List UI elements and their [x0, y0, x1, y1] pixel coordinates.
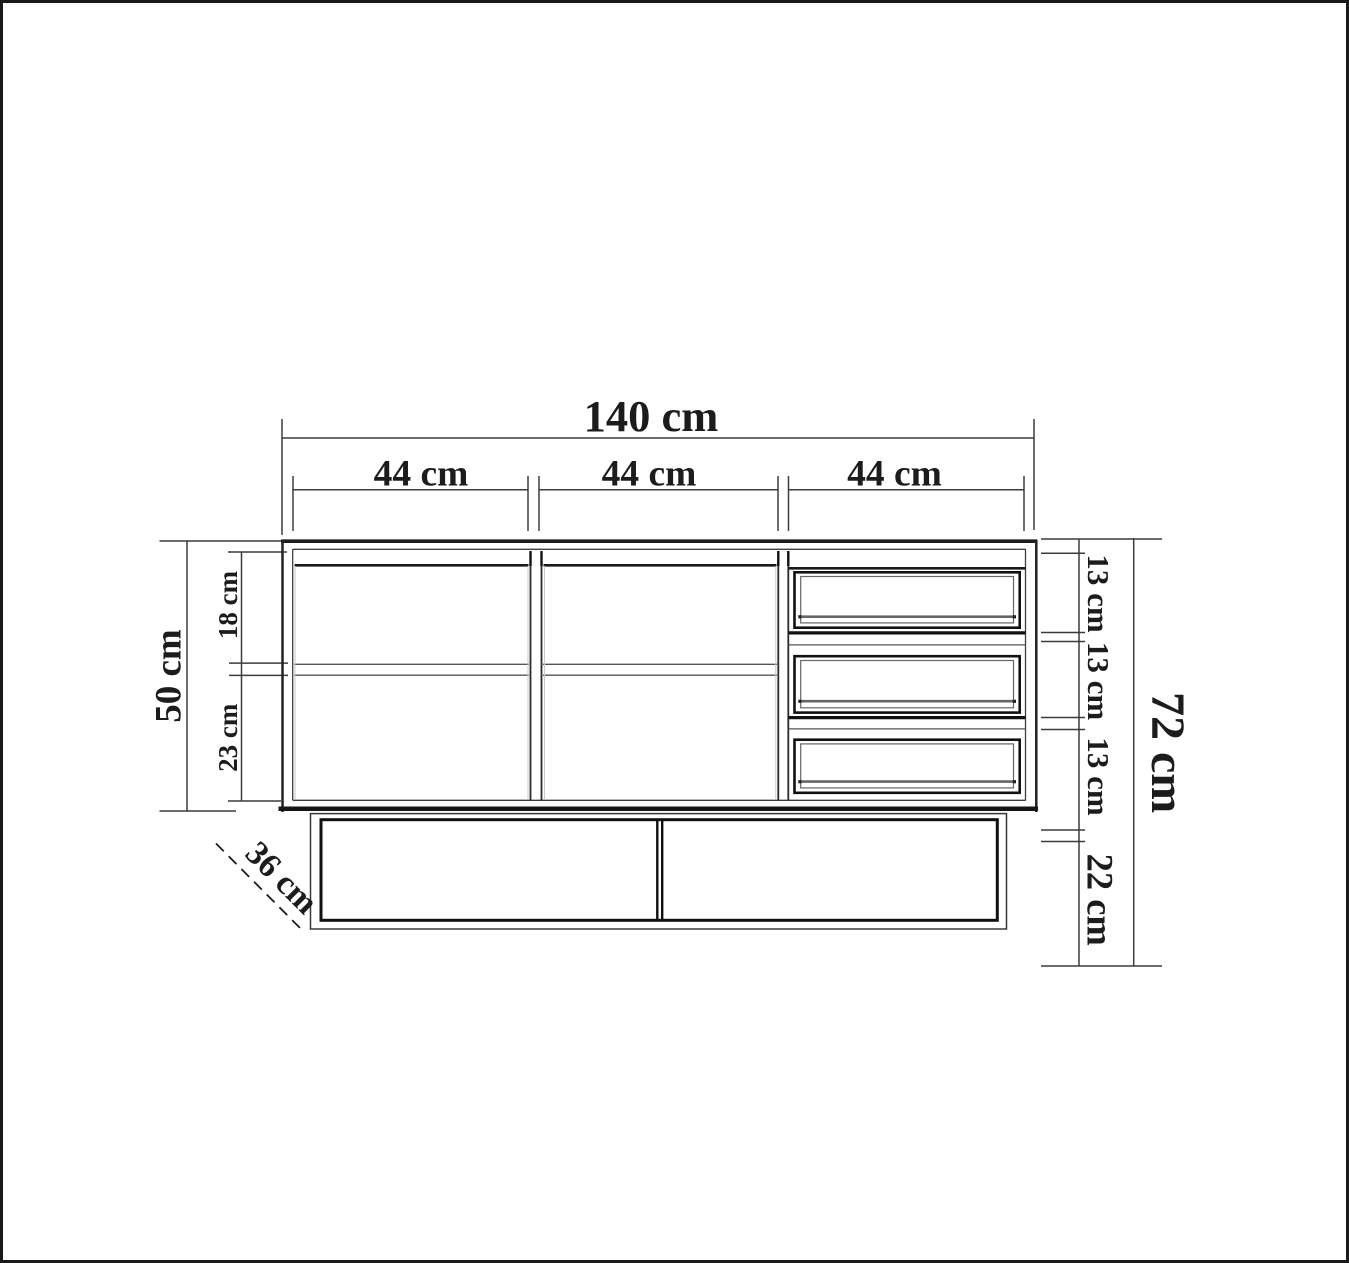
svg-text:13 cm: 13 cm	[1081, 737, 1116, 816]
svg-text:18 cm: 18 cm	[213, 570, 243, 639]
svg-text:44 cm: 44 cm	[602, 454, 697, 495]
svg-text:140 cm: 140 cm	[584, 391, 719, 441]
svg-text:13 cm: 13 cm	[1081, 642, 1116, 721]
svg-text:72 cm: 72 cm	[1141, 692, 1194, 813]
svg-text:50 cm: 50 cm	[149, 629, 190, 723]
svg-text:13 cm: 13 cm	[1081, 554, 1116, 633]
svg-text:22 cm: 22 cm	[1079, 854, 1120, 946]
svg-text:44 cm: 44 cm	[847, 454, 942, 495]
svg-text:44 cm: 44 cm	[374, 454, 469, 495]
svg-text:23 cm: 23 cm	[213, 703, 243, 772]
